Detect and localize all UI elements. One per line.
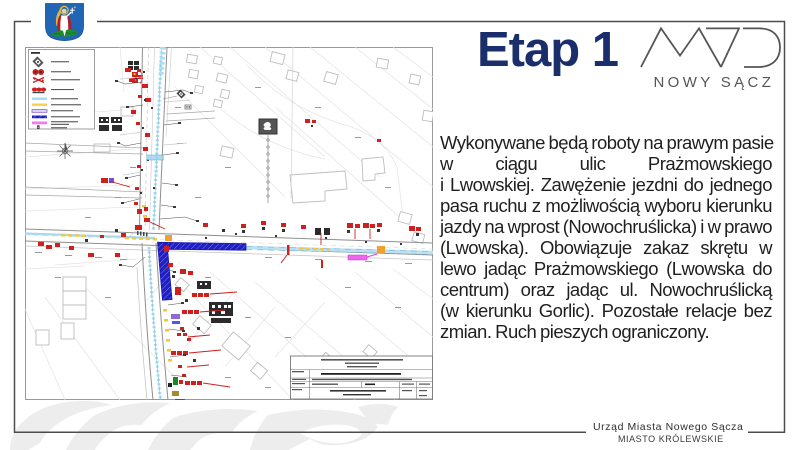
svg-text:NOWY SĄCZ: NOWY SĄCZ bbox=[654, 74, 775, 91]
